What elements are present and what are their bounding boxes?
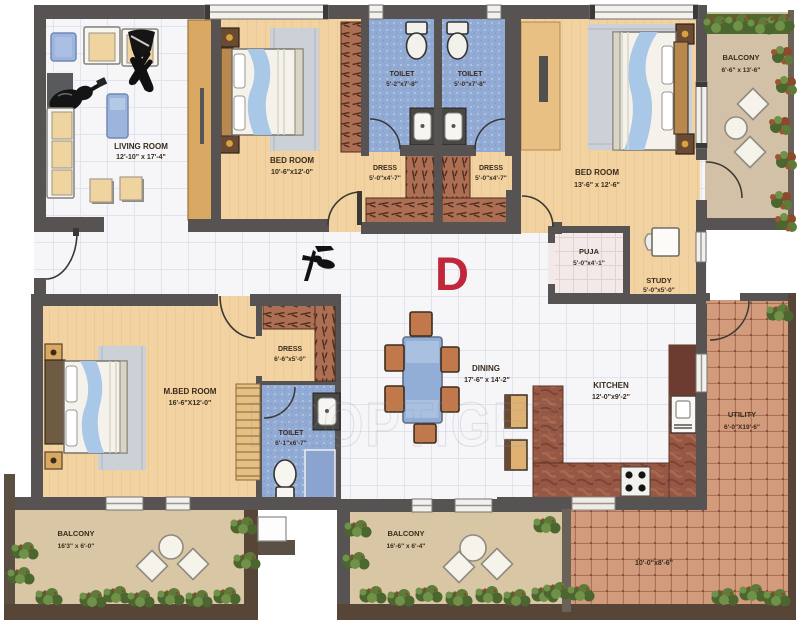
svg-text:BED ROOM: BED ROOM: [270, 156, 314, 165]
svg-text:DRESS: DRESS: [479, 165, 503, 172]
svg-text:M.BED ROOM: M.BED ROOM: [164, 387, 217, 396]
svg-text:13'-6" x 12'-6": 13'-6" x 12'-6": [574, 182, 620, 189]
svg-text:12'-10" x 17'-4": 12'-10" x 17'-4": [116, 154, 166, 161]
svg-text:5'-0"x4'-7": 5'-0"x4'-7": [369, 175, 401, 182]
svg-text:STUDY: STUDY: [646, 276, 671, 285]
svg-text:UTILITY: UTILITY: [728, 410, 756, 419]
svg-text:5'-2"x7'-8": 5'-2"x7'-8": [386, 81, 418, 88]
svg-text:TOILET: TOILET: [279, 430, 304, 437]
svg-text:D: D: [435, 247, 469, 300]
svg-text:5'-0"x7'-8": 5'-0"x7'-8": [454, 81, 486, 88]
svg-text:12'-0"x9'-2": 12'-0"x9'-2": [592, 394, 630, 401]
svg-text:6'-1"x6'-7": 6'-1"x6'-7": [275, 440, 307, 447]
svg-text:LIVING ROOM: LIVING ROOM: [114, 142, 168, 151]
svg-text:6'-6" x 13'-6": 6'-6" x 13'-6": [722, 67, 761, 74]
svg-text:PROPTIGER: PROPTIGER: [248, 391, 568, 460]
svg-text:5'-0"x4'-1": 5'-0"x4'-1": [573, 260, 605, 267]
svg-text:DRESS: DRESS: [373, 165, 397, 172]
svg-text:BALCONY: BALCONY: [57, 529, 94, 538]
svg-text:KITCHEN: KITCHEN: [593, 381, 629, 390]
svg-text:TOILET: TOILET: [458, 71, 483, 78]
svg-text:BED ROOM: BED ROOM: [575, 168, 619, 177]
svg-text:16'-6"X12'-0": 16'-6"X12'-0": [169, 400, 212, 407]
svg-text:DRESS: DRESS: [278, 346, 302, 353]
svg-text:17'-6" x 14'-2": 17'-6" x 14'-2": [464, 377, 510, 384]
svg-text:16'3" x 6'-0": 16'3" x 6'-0": [58, 543, 95, 550]
svg-text:6'-0"X19'-6": 6'-0"X19'-6": [724, 424, 760, 431]
svg-text:BALCONY: BALCONY: [722, 53, 759, 62]
svg-text:10'-6"x12'-0": 10'-6"x12'-0": [271, 169, 313, 176]
svg-text:TOILET: TOILET: [390, 71, 415, 78]
svg-text:DINING: DINING: [472, 364, 500, 373]
svg-text:6'-6"x5'-0": 6'-6"x5'-0": [274, 356, 306, 363]
svg-text:PUJA: PUJA: [579, 247, 600, 256]
svg-text:5'-0"x4'-7": 5'-0"x4'-7": [475, 175, 507, 182]
svg-text:10'-0"x8'-6": 10'-0"x8'-6": [635, 560, 673, 567]
svg-text:16'-6" x 6'-4": 16'-6" x 6'-4": [387, 543, 426, 550]
svg-text:5'-0"x5'-0": 5'-0"x5'-0": [643, 287, 675, 294]
svg-text:BALCONY: BALCONY: [387, 529, 424, 538]
